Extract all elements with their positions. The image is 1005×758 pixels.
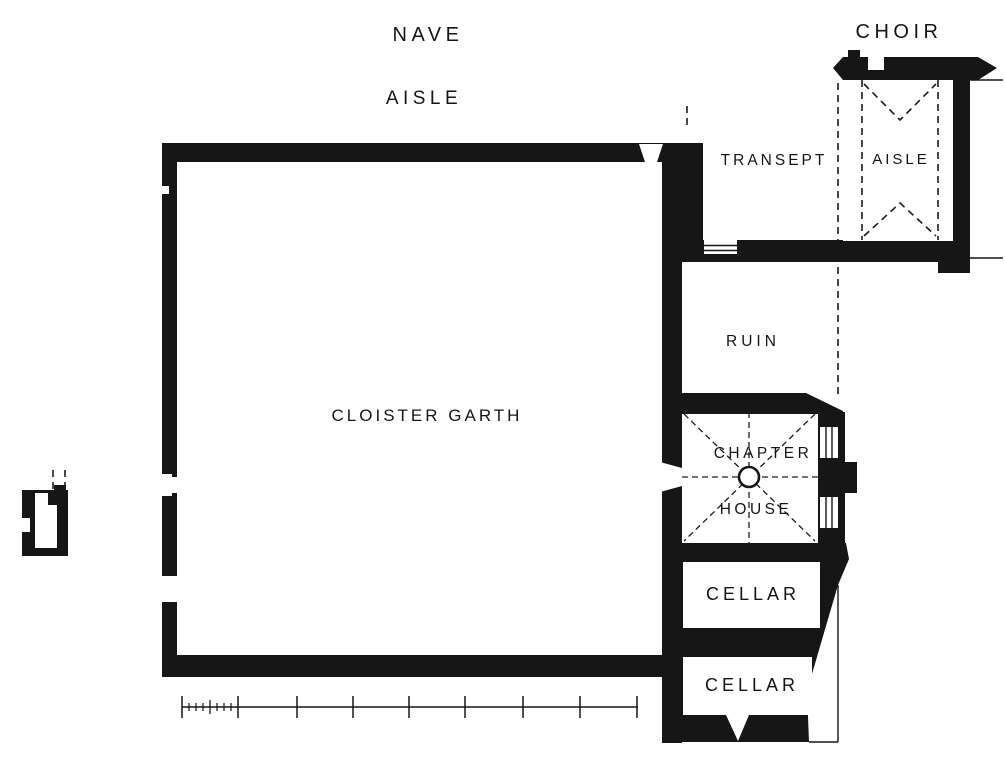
label-nave: NAVE (393, 24, 464, 46)
central-column (739, 467, 759, 487)
label-cellar-upper: CELLAR (706, 584, 800, 604)
label-chapter: CHAPTER (714, 445, 813, 462)
ruin-walls (662, 393, 843, 414)
transept-doorway (704, 240, 737, 254)
label-cloister-garth: CLOISTER GARTH (332, 406, 523, 425)
label-nave-aisle: AISLE (386, 88, 462, 109)
cloister-garth-walls (159, 143, 703, 743)
detached-building (22, 485, 68, 556)
label-cellar-lower: CELLAR (705, 675, 799, 695)
cellar-block (653, 543, 849, 742)
label-ruin: RUIN (726, 333, 780, 350)
label-house: HOUSE (720, 501, 793, 518)
floor-plan-page: NAVE AISLE CHOIR TRANSEPT AISLE RUIN CLO… (0, 0, 1005, 758)
label-transept: TRANSEPT (721, 152, 828, 169)
dashed-vault-and-ruin-lines (53, 80, 938, 489)
floor-plan-drawing: NAVE AISLE CHOIR TRANSEPT AISLE RUIN CLO… (0, 0, 1005, 758)
label-choir: CHOIR (856, 21, 943, 43)
scale-bar (182, 696, 638, 718)
chapter-house (653, 412, 857, 543)
label-choir-aisle: AISLE (872, 151, 930, 168)
